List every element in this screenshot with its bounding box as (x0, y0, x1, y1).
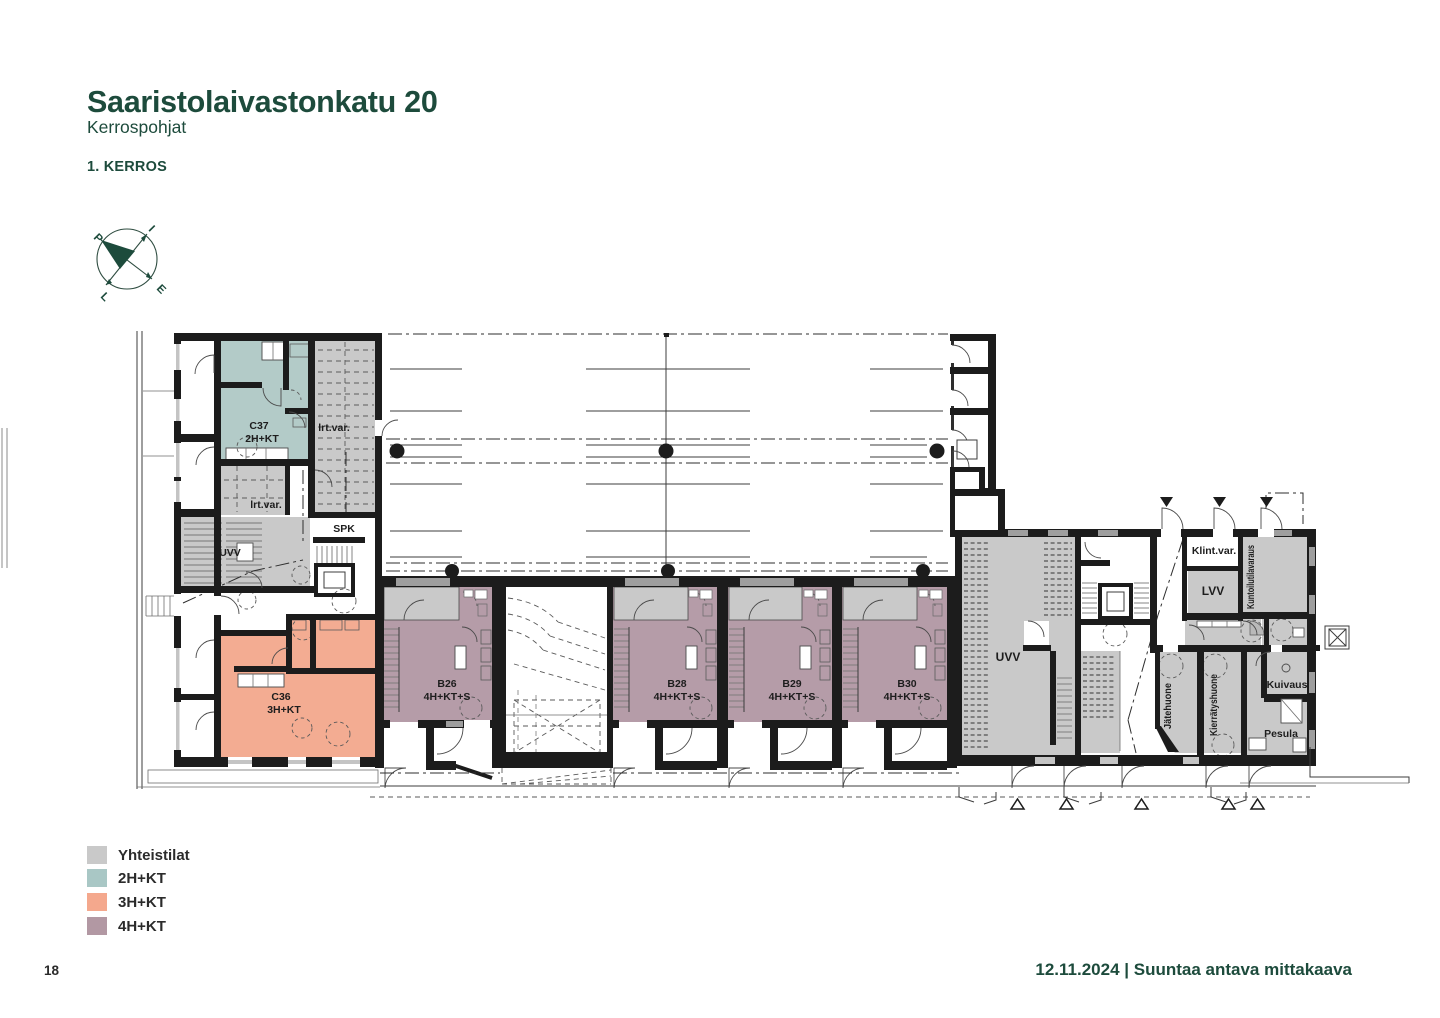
svg-text:Saaristolaivastonkatu 20: Saaristolaivastonkatu 20 (87, 85, 438, 119)
svg-text:lrt.var.: lrt.var. (250, 499, 282, 511)
svg-text:4H+KT+S: 4H+KT+S (884, 691, 931, 703)
svg-text:2H+KT: 2H+KT (245, 433, 279, 445)
svg-text:B30: B30 (897, 678, 916, 690)
svg-text:UVV: UVV (219, 547, 241, 559)
svg-text:Kerrospohjat: Kerrospohjat (87, 117, 186, 137)
svg-text:Kierrätyshuone: Kierrätyshuone (1208, 674, 1220, 736)
svg-text:2H+KT: 2H+KT (118, 870, 166, 887)
svg-text:B28: B28 (667, 678, 686, 690)
svg-text:4H+KT+S: 4H+KT+S (769, 691, 816, 703)
svg-text:UVV: UVV (996, 650, 1021, 664)
svg-text:3H+KT: 3H+KT (267, 704, 301, 716)
svg-text:C36: C36 (271, 691, 290, 703)
svg-text:4H+KT: 4H+KT (118, 918, 166, 935)
svg-text:4H+KT+S: 4H+KT+S (424, 691, 471, 703)
svg-text:4H+KT+S: 4H+KT+S (654, 691, 701, 703)
svg-text:Yhteistilat: Yhteistilat (118, 847, 190, 864)
svg-text:LVV: LVV (1202, 584, 1224, 598)
svg-text:B26: B26 (437, 678, 456, 690)
svg-text:Kuivaus: Kuivaus (1267, 679, 1308, 691)
svg-text:3H+KT: 3H+KT (118, 894, 166, 911)
svg-text:12.11.2024 | Suuntaa antava mi: 12.11.2024 | Suuntaa antava mittakaava (1035, 960, 1352, 979)
svg-text:Pesula: Pesula (1264, 728, 1298, 740)
svg-text:Kuntoilutilavaraus: Kuntoilutilavaraus (1245, 545, 1257, 609)
svg-text:SPK: SPK (333, 523, 355, 535)
svg-text:B29: B29 (782, 678, 801, 690)
svg-text:18: 18 (44, 963, 60, 978)
svg-text:1. KERROS: 1. KERROS (87, 159, 167, 175)
svg-text:Jätehuone: Jätehuone (1162, 683, 1174, 729)
svg-text:C37: C37 (249, 420, 268, 432)
svg-text:Klint.var.: Klint.var. (1192, 545, 1236, 557)
svg-text:lrt.var.: lrt.var. (318, 422, 350, 434)
